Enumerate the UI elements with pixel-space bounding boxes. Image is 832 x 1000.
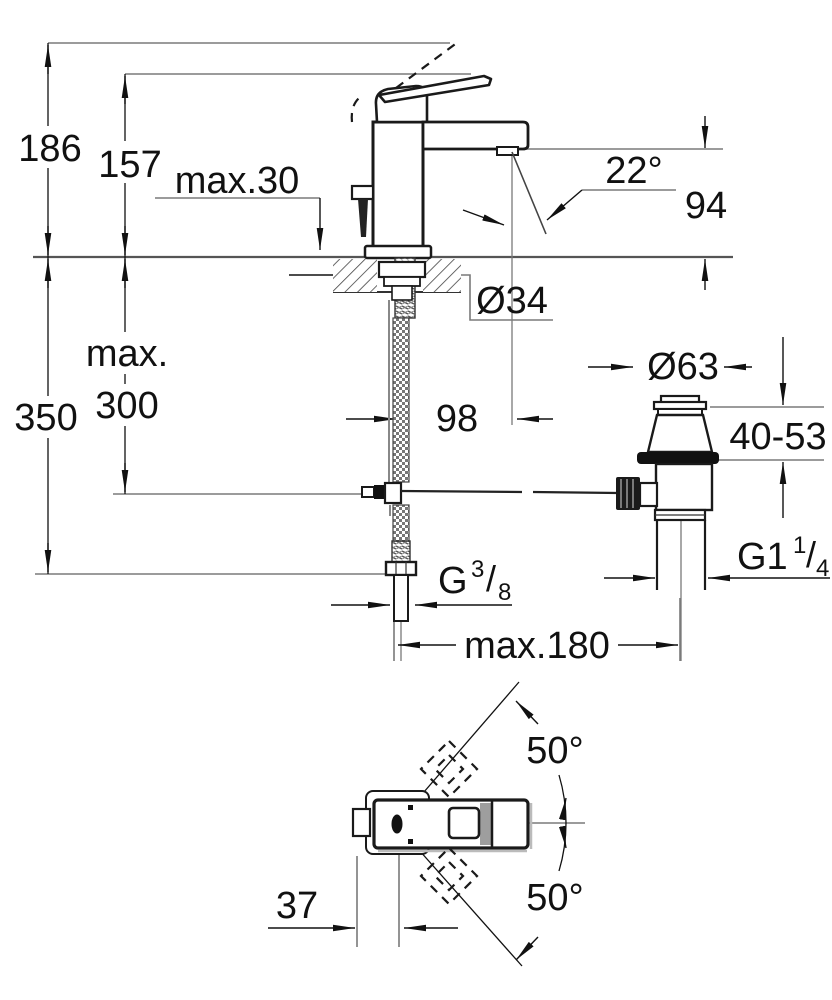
dim-label-supply-thread: G 3 / 8 <box>438 556 511 606</box>
body-dot-bottom <box>408 839 413 844</box>
pull-rod-left <box>401 491 522 492</box>
handle-swing-arc-dashed <box>352 95 363 122</box>
handle-position-lower-inner-dashed <box>435 862 463 890</box>
rod-end-stub <box>362 487 374 497</box>
dim-label-swivel-lower: 50° <box>526 877 583 919</box>
deck-hatch-right <box>423 259 461 292</box>
aerator <box>497 147 518 155</box>
dim-label-rod-depth-word: max. <box>86 333 168 375</box>
handle-position-upper-inner-dashed <box>435 755 463 783</box>
cartridge-axis-dot <box>392 815 403 834</box>
spout-arm <box>423 122 528 149</box>
dim-label-waste-diameter: Ø63 <box>647 346 719 388</box>
technical-drawing-page: 186 157 max.30 22° 94 max. 300 350 Ø34 9… <box>0 0 832 1000</box>
mounting-washer <box>384 277 420 286</box>
mounting-nut <box>379 262 425 277</box>
dim-label-hole-diameter: Ø34 <box>476 280 548 322</box>
dim-label-swivel-upper: 50° <box>526 730 583 772</box>
hose-thread-end <box>392 541 410 562</box>
handle-grip-band <box>480 803 492 845</box>
faucet-top-view <box>353 741 531 904</box>
dim-label-spout-top-height: 157 <box>98 144 161 186</box>
faucet-body <box>373 122 423 248</box>
popup-waste-assembly <box>616 396 719 590</box>
handle-square-hole <box>449 808 479 838</box>
top-view-spout-tab <box>353 809 370 836</box>
dim-label-outlet-height: 94 <box>685 185 727 227</box>
lift-rod-upper <box>358 199 368 237</box>
deck-hatch-left <box>333 259 377 292</box>
waste-knurled-knob <box>616 477 640 510</box>
lift-rod-knob <box>352 186 373 199</box>
dim-label-deck-thickness: max.30 <box>175 160 300 202</box>
waste-cap-base <box>654 402 706 409</box>
body-dot-top <box>408 805 413 810</box>
dim-label-projection: 98 <box>436 398 478 440</box>
dim-label-waste-thread: G1 1 / 4 <box>737 532 829 582</box>
rod-clamp <box>374 485 385 499</box>
dim-label-clamping-range: 40-53 <box>729 416 826 458</box>
supply-hose <box>393 318 409 482</box>
waste-taper-body <box>648 415 712 452</box>
handle-position-lower-dashed <box>421 848 477 904</box>
hose-connector-tube <box>394 575 408 621</box>
rod-joint <box>385 483 401 503</box>
pull-rod-right <box>533 492 618 493</box>
drawing-canvas: 186 157 max.30 22° 94 max. 300 350 Ø34 9… <box>0 0 832 1000</box>
supply-hose-tail <box>393 505 409 541</box>
waste-body <box>656 464 712 510</box>
hose-hex-nut <box>386 562 416 575</box>
waste-gasket <box>637 452 719 464</box>
dim-label-handle-offset: 37 <box>276 885 318 927</box>
dim-label-rod-depth-value: 300 <box>95 385 158 427</box>
mounting-bracket <box>392 286 412 300</box>
waste-rod-connector <box>640 483 657 506</box>
dim-label-total-height: 186 <box>18 128 81 170</box>
dim-label-reach-max: max.180 <box>464 625 610 667</box>
water-stream-line <box>512 152 546 234</box>
base-plate <box>365 246 431 258</box>
dim-label-depth-total: 350 <box>14 397 77 439</box>
dim-label-stream-angle: 22° <box>605 150 662 192</box>
handle-position-upper-dashed <box>421 741 477 797</box>
